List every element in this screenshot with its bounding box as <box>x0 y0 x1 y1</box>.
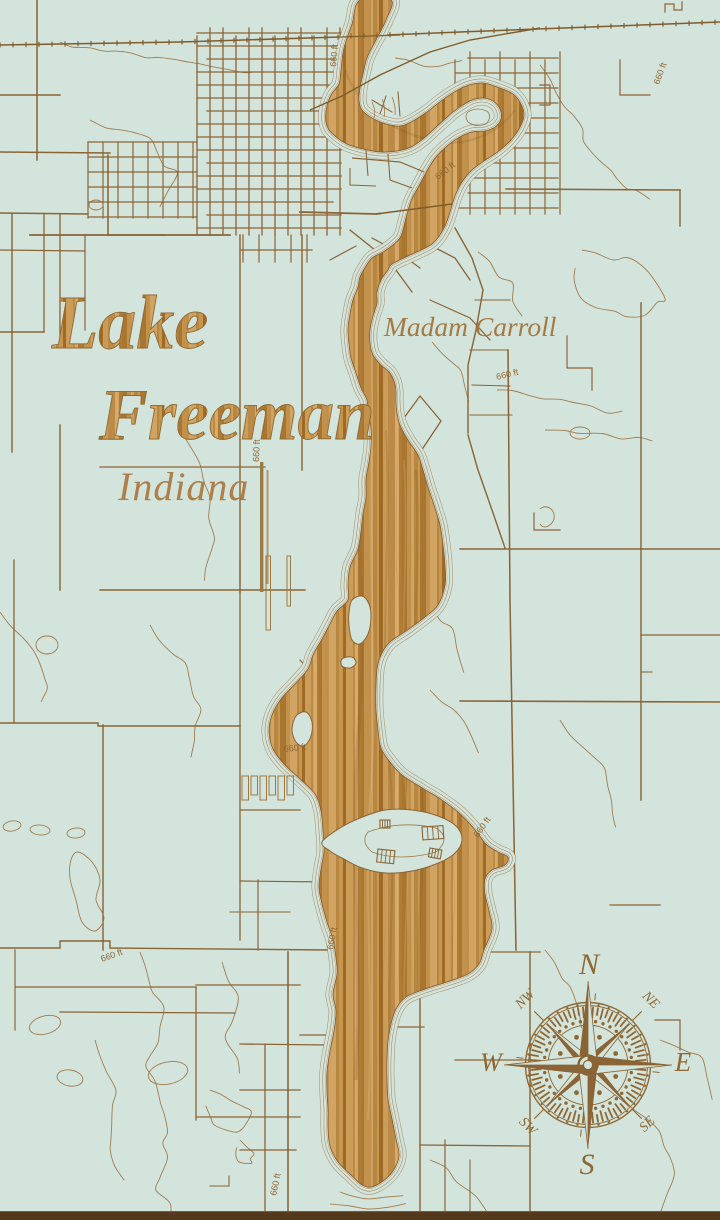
svg-text:660 ft: 660 ft <box>328 43 340 67</box>
svg-text:Lake: Lake <box>51 281 208 365</box>
svg-text:Madam Carroll: Madam Carroll <box>383 311 557 342</box>
svg-text:Indiana: Indiana <box>117 464 249 509</box>
svg-text:N: N <box>578 948 601 981</box>
svg-text:W: W <box>480 1048 504 1077</box>
svg-text:E: E <box>674 1047 692 1077</box>
svg-text:Freeman: Freeman <box>98 374 375 455</box>
svg-text:S: S <box>580 1148 595 1181</box>
